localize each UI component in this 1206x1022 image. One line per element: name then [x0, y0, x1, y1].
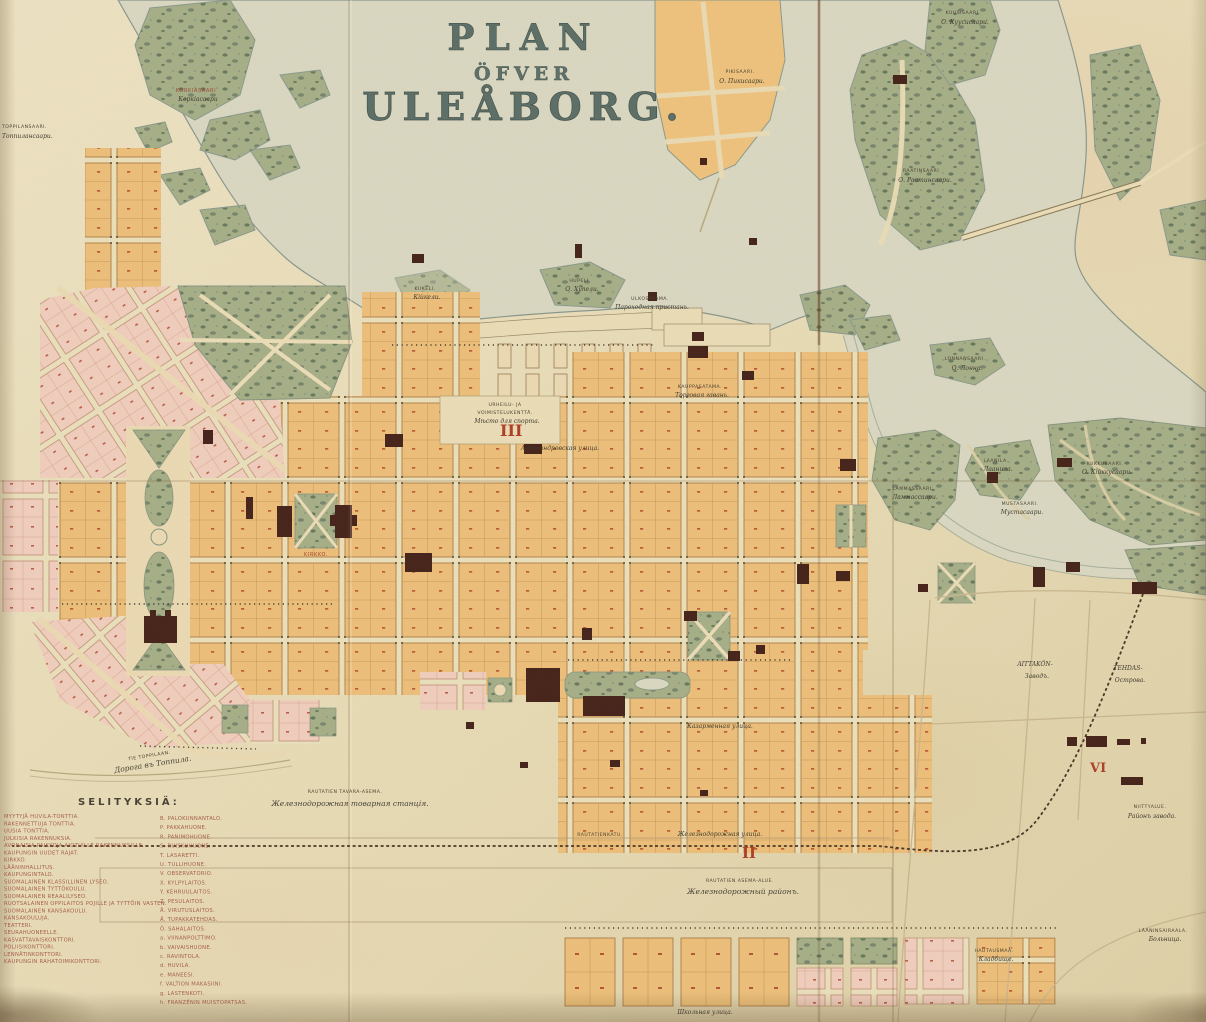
label-fields-a-ru: Заводъ.	[1025, 673, 1049, 680]
label-kiikeli-fi: KIIKELI.	[414, 286, 435, 292]
label-fields-b-ru: Острова.	[1115, 677, 1145, 684]
legend-entry: SUOMALAINEN TYTTÖKOULU.	[4, 886, 87, 893]
legend-entry: SUOMALAINEN KLASSILLINEN LYSEO.	[4, 879, 109, 885]
legend-entry: POLIISIKONTTORI.	[4, 945, 55, 951]
label-kuusisaari-ru: О. Куусисаари.	[941, 19, 989, 26]
legend-entry: MYYTYJÄ HUVILA-TONTTIA.	[4, 813, 79, 820]
legend-entry: SUOMALAINEN REAALILYSEO.	[4, 894, 87, 900]
title-line-ofver: ÖFVER	[474, 62, 574, 85]
label-rautatienkatu: RAUTATIENKATU.	[577, 832, 623, 838]
historic-city-plan-map: { "title": { "line1": "PLAN", "line2": "…	[0, 0, 1206, 1022]
district-vi: VI	[1089, 761, 1106, 776]
legend-entry: S. RUISKUHUONE.	[160, 844, 211, 850]
legend-entry: U. TULLIHUONE.	[160, 862, 206, 868]
map-canvas: PLAN ÖFVER ULEÅBORG. III II VI TOPPILANS…	[0, 0, 1206, 1022]
legend-entry: d. HUVILA.	[160, 963, 191, 969]
label-toppilansaari-ru: Топпилансаари.	[2, 133, 53, 140]
label-kazarmennaya: Казарменная улица.	[686, 723, 753, 730]
label-station-area-fi: RAUTATIEN ASEMA-ALUE.	[706, 878, 774, 884]
label-lammassaari-fi: LAMMASSAARI.	[892, 486, 933, 492]
label-tavara-fi: RAUTATIEN TAVARA-ASEMA.	[308, 789, 383, 795]
legend-entry: a. VIINANPOLTTIMO.	[160, 936, 217, 942]
legend-entry: KAUPUNGIN UUDET RAJAT.	[4, 850, 79, 856]
label-kuusisaari-fi: KUUSISAARI.	[946, 10, 981, 16]
label-mustasaari-fi: MUSTASAARI.	[1002, 501, 1039, 507]
legend-entry: P. PAKKAHUONE.	[160, 825, 207, 831]
label-never-fi: NIITTYALUE.	[1134, 804, 1167, 810]
label-never-ru: Районъ завода.	[1127, 813, 1176, 820]
legend-entry: KASVATTAVAISKONTTORI.	[4, 937, 76, 943]
legend-entry: KANSAKOULUJA.	[4, 916, 50, 922]
legend-entry: Ä. TUPAKKATEHDAS.	[160, 916, 218, 923]
legend-entry: JULKISIA RAKENNUKSIA.	[3, 836, 72, 842]
legend-entry: SEURAHUONEELLE.	[4, 930, 59, 936]
legend-entry: RUOTSALAINEN OPPILAITOS POJILLE JA TYTTÖ…	[4, 900, 167, 907]
legend-entry: h. FRANZÉNIN MUISTOPATSAS.	[160, 998, 247, 1006]
label-fields-a-fi: AITTAKÖN-	[1016, 661, 1052, 668]
label-kiikkusaari-fi: KIIKKUSAARI.	[1087, 461, 1123, 467]
legend-entry: KAUPUNGIN RAHATOIMIKONTTORI.	[4, 959, 102, 965]
label-aleksandrovskaya: Александровская улица.	[520, 445, 599, 452]
legend-entry: Ö. SAHALAITOS.	[160, 925, 206, 932]
label-laanila-fi: LAANILA.	[983, 458, 1008, 464]
legend-entry: e. MANEESI.	[160, 972, 195, 978]
legend-entry: KAUPUNGINTALO.	[4, 872, 54, 878]
legend-entry: f. VALTION MAKASIINI.	[160, 982, 223, 988]
label-kauppasatama-fi: KAUPPASATAMA.	[678, 384, 722, 390]
title-line-plan: PLAN	[447, 17, 600, 59]
legend-entry: SUOMALAINEN KANSAKOULU.	[4, 908, 88, 914]
label-sports-fi2: VOIMISTELUKENTTÄ.	[477, 409, 532, 416]
label-toppilansaari-fi: TOPPILANSAARI.	[1, 124, 47, 130]
legend-entry: c. RAVINTOLA.	[160, 954, 201, 960]
legend-entry: LÄÄNINHALLITUS.	[4, 864, 55, 871]
label-korkiasaari-ru: Коркiасаари	[177, 96, 218, 103]
label-sports-fi1: URHEILU- JA	[489, 402, 522, 408]
legend-entry: KIRKKO.	[4, 858, 27, 864]
label-fields-b-fi: TEHDAS-	[1113, 665, 1142, 672]
label-lammassaari-ru: Ламмассаари.	[891, 494, 938, 501]
legend-heading: SELITYKSIÄ:	[78, 794, 180, 808]
legend-entry: UUSIA TONTTIA.	[4, 829, 50, 835]
label-korkiasaari-fi: KORKIASAARI	[176, 88, 216, 94]
label-shkolnaya: Школьная улица.	[676, 1009, 732, 1016]
label-hupeli-fi: HUPELI.	[569, 278, 590, 284]
legend-entry: Å. VIRUTUSLAITOS.	[160, 907, 215, 914]
legend-entry: R. PANIMOHUONE.	[160, 834, 212, 840]
legend-entry: B. PALOKUNNANTALO.	[160, 816, 222, 822]
label-pikisaari-ru: О. Пикисаари.	[719, 78, 764, 85]
label-ulkosatama-fi: ULKOSATAMA.	[631, 296, 669, 302]
legend-entry: Y. KEHRUULAITOS.	[159, 890, 212, 896]
label-lonnansaari-fi: LONNANSAARI.	[945, 356, 986, 362]
label-hupeli-ru: О. Хупели.	[565, 286, 599, 293]
label-laanila-ru: Лаанила.	[982, 466, 1012, 473]
label-cemetery-fi: HAUTAUSMAA.	[974, 948, 1013, 954]
label-kirkko: KIRKKO.	[304, 552, 328, 558]
legend-entry: X. KYLPYLAITOS.	[160, 880, 207, 886]
label-raatinsaari-fi: RAATINSAARI.	[903, 168, 941, 174]
label-kiikkusaari-ru: О. Кійккусаари.	[1082, 469, 1132, 476]
label-cemetery-ru: Кладбище.	[978, 956, 1014, 963]
label-kiikeli-ru: Кійкели.	[412, 294, 440, 301]
label-zheleznaya: Железнодорожная улица.	[677, 831, 763, 838]
district-ii: II	[742, 844, 756, 862]
label-kauppasatama-ru: Торговая гавань.	[675, 392, 729, 399]
label-tavara-ru: Железнодорожная товарная станцiя.	[270, 799, 428, 808]
label-hospital-ru: Больница.	[1148, 936, 1182, 943]
label-pikisaari-fi: PIKISAARI.	[726, 69, 755, 75]
legend-entry: T. LASARETTI.	[159, 853, 200, 859]
legend-entry: AVONAISIA PAIKKOJA AIOTUILLE RAKENNUKSIL…	[4, 843, 144, 849]
label-hospital-fi: LÄÄNINSAIRAALA.	[1139, 927, 1188, 934]
label-sports-ru: Мѣсто для спорта.	[473, 418, 539, 425]
legend-entry: Z. PESULAITOS.	[160, 899, 205, 905]
label-mustasaari-ru: Мустасаари.	[1000, 509, 1043, 516]
legend-entry: LENNÄTINKONTTORI.	[4, 951, 63, 958]
label-station-area-ru: Железнодорожный районъ.	[686, 887, 799, 896]
legend-entry: b. VAIVAISHUONE.	[160, 945, 212, 951]
label-lonnansaari-ru: О. Лонна.	[952, 365, 983, 372]
label-ulkosatama-ru: Пароходная пристань.	[614, 304, 689, 311]
legend-entry: TEATTERI.	[3, 923, 33, 929]
legend-entry: RAKENNETTUJA TONTTIA.	[4, 821, 76, 827]
legend-entry: g. LASTENKOTI.	[160, 991, 205, 997]
title-line-uleaborg: ULEÅBORG.	[362, 84, 685, 129]
legend-entry: V. OBSERVATORIO.	[160, 871, 213, 877]
label-raatinsaari-ru: О. Раатинсаари.	[898, 177, 952, 184]
